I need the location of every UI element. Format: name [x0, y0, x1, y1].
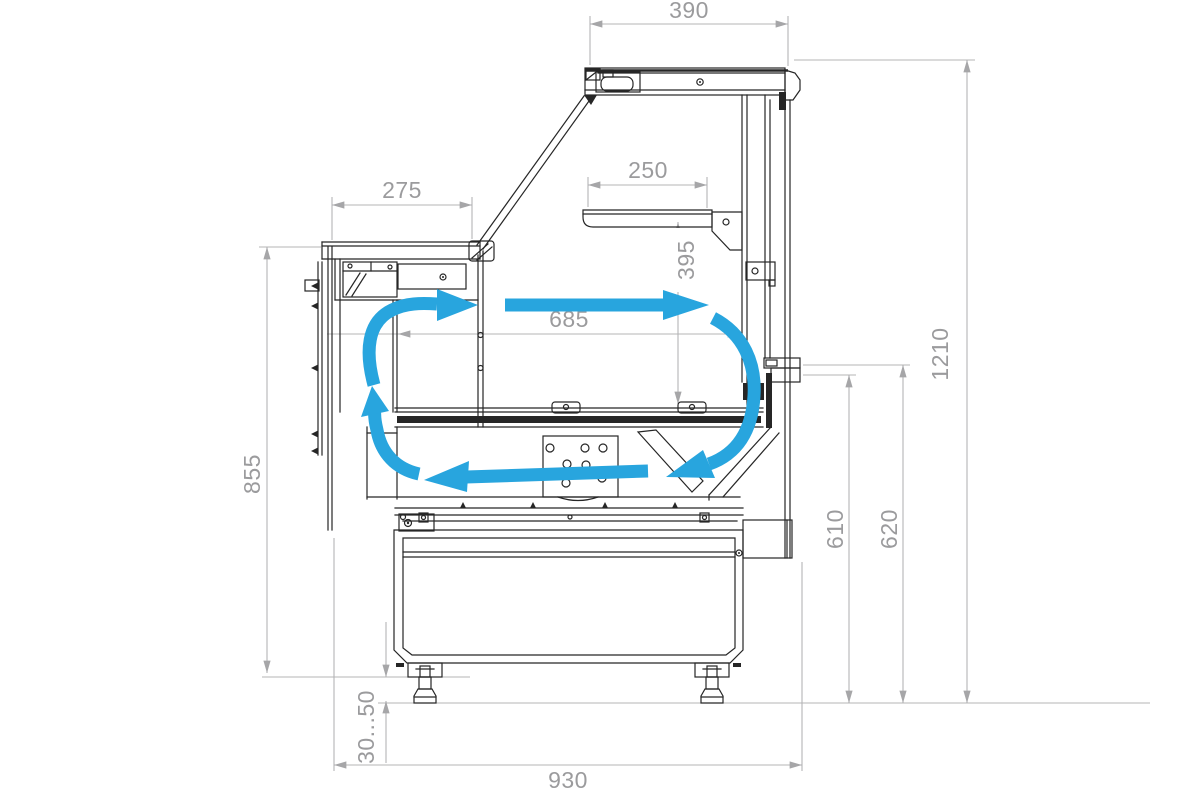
adjustable-foot-left: [408, 663, 442, 703]
dim-foot-adjust: 30...50: [353, 622, 1150, 764]
dim-shelf-depth: 250: [588, 157, 707, 208]
chamber-front-wall: [478, 251, 483, 427]
dim-label-855: 855: [239, 454, 265, 494]
dim-label-275: 275: [382, 177, 422, 203]
dim-overall-height: 1210: [794, 60, 975, 703]
display-shelf: [583, 210, 712, 227]
dim-label-390: 390: [669, 0, 709, 23]
dim-worktop-height: 855: [239, 247, 470, 677]
dim-label-30-50: 30...50: [353, 690, 379, 764]
airflow-duct-exit-curve-arrow: [369, 289, 478, 385]
airflow-rear-gap-up-arrow: [361, 386, 419, 474]
glass-bottom-clip: [469, 241, 494, 261]
machinery-plate: [398, 264, 466, 289]
cross-section-svg: 390 275 250 395 685: [0, 0, 1200, 800]
dim-canopy-depth: 390: [590, 0, 788, 66]
front-duct-wall: [766, 373, 772, 428]
shelf-bracket: [712, 212, 742, 250]
display-deck: [395, 402, 763, 427]
rear-panel-plate: [746, 262, 775, 286]
dim-front-upper-height: 620: [803, 365, 910, 703]
floor-left-bracket: [399, 514, 434, 531]
lower-compartment: [367, 427, 740, 501]
floor-assembly: [395, 502, 743, 531]
dim-overall-depth: 930: [334, 538, 802, 793]
dim-front-lower-height: 610: [803, 375, 856, 703]
dim-label-1210: 1210: [927, 327, 953, 380]
airflow-bottom-return-arrow: [424, 461, 648, 492]
dim-label-250: 250: [628, 157, 668, 183]
dim-label-395: 395: [673, 240, 699, 280]
dim-worktop-depth: 275: [332, 177, 472, 240]
rear-cladding: [305, 247, 332, 530]
airflow-back-wall-down-arrow: [666, 318, 754, 478]
adjustable-foot-right: [695, 663, 729, 703]
front-glass: [469, 95, 597, 261]
cabinet-structure: [305, 68, 800, 703]
dim-label-930: 930: [548, 767, 588, 793]
dim-label-610: 610: [822, 509, 848, 549]
technical-drawing: 390 275 250 395 685: [0, 0, 1200, 800]
base-plinth: [394, 530, 743, 667]
canopy: [585, 68, 800, 100]
worktop: [322, 242, 480, 259]
worktop-machinery: [335, 259, 478, 300]
dim-label-620: 620: [876, 509, 902, 549]
